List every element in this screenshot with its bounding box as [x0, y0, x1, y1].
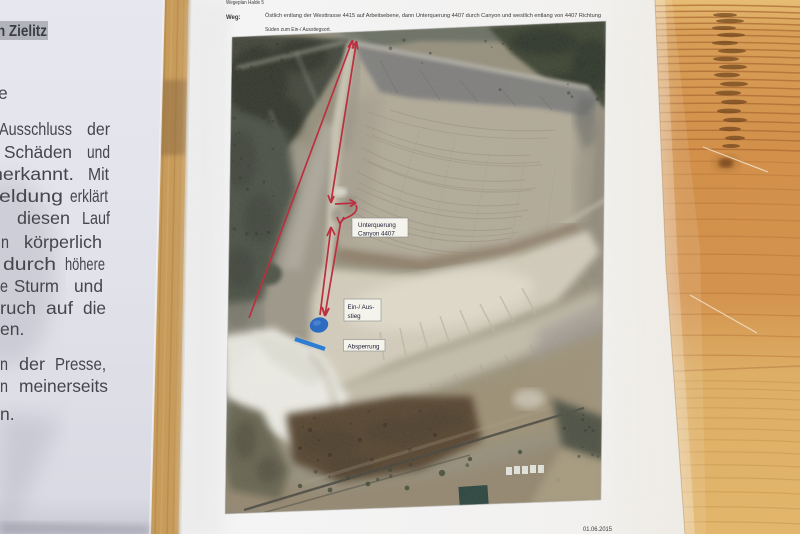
svg-text:n.: n. — [0, 404, 15, 424]
svg-text:n Zielitz: n Zielitz — [0, 23, 47, 40]
svg-text:Unterquerung: Unterquerung — [358, 222, 396, 229]
svg-text:Schädenund: Schädenund — [4, 142, 110, 162]
svg-text:Weg:: Weg: — [226, 15, 241, 21]
svg-text:eSturmund: eSturmund — [0, 276, 103, 296]
svg-text:Wegeplan Halde 5: Wegeplan Halde 5 — [226, 0, 264, 6]
svg-text:Ausschlussder: Ausschlussder — [0, 119, 110, 139]
svg-text:Ein-/ Aus-: Ein-/ Aus- — [348, 304, 375, 311]
svg-text:ruchaufdie: ruchaufdie — [0, 298, 106, 318]
svg-text:Östlich entlang der Westtrasse: Östlich entlang der Westtrasse 4415 auf … — [265, 12, 601, 19]
svg-text:en.: en. — [0, 319, 24, 339]
svg-text:nerkannt.Mit: nerkannt.Mit — [0, 164, 109, 184]
svg-text:e: e — [0, 83, 8, 103]
svg-text:durchhöhere: durchhöhere — [3, 254, 105, 274]
svg-text:eldungerklärt: eldungerklärt — [0, 186, 108, 206]
svg-text:diesenLauf: diesenLauf — [17, 208, 110, 228]
svg-text:Absperrung: Absperrung — [348, 344, 381, 351]
svg-text:01.06.2015: 01.06.2015 — [583, 526, 612, 533]
svg-text:Canyon 4407: Canyon 4407 — [358, 231, 395, 238]
svg-text:Süden zum Ein-/ Ausstiegsort.: Süden zum Ein-/ Ausstiegsort. — [265, 27, 331, 33]
svg-text:stieg: stieg — [348, 313, 362, 320]
